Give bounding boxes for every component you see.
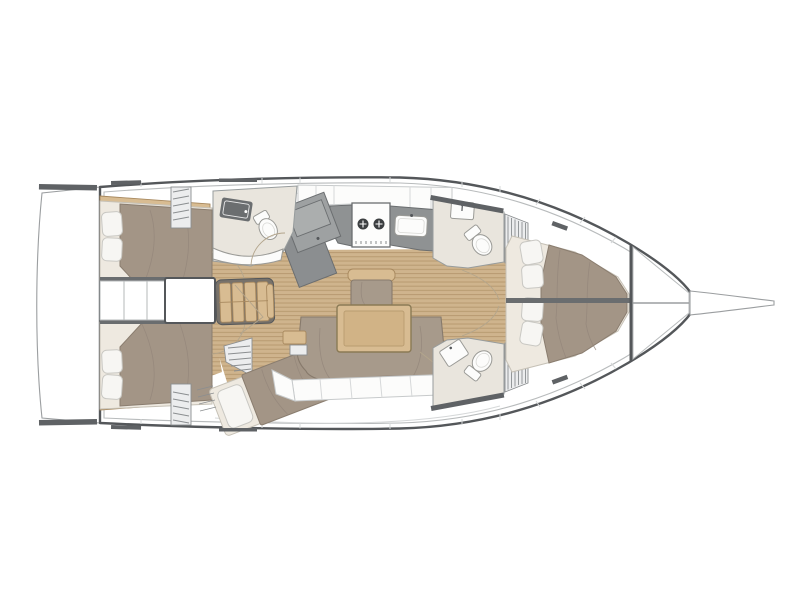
floor-plan-canvas: [0, 0, 800, 600]
salon-table: [337, 305, 411, 352]
cabin-divider-wall: [506, 298, 632, 303]
pillow: [521, 264, 544, 288]
companionway-area: [100, 277, 215, 324]
berth-duvet: [120, 322, 212, 406]
companionway-steps: [165, 278, 215, 323]
stove: [352, 203, 390, 247]
settee-bench: [215, 278, 275, 325]
bowsprit: [690, 291, 774, 315]
pillow: [519, 320, 544, 346]
chair-cushion: [351, 280, 392, 307]
galley-sink: [394, 213, 427, 237]
salon-chair: [348, 269, 395, 307]
pillow: [101, 374, 123, 399]
hanging-locker: [171, 187, 191, 228]
pillow: [519, 239, 544, 265]
stern-hatch-top: [39, 184, 97, 191]
pillow: [101, 237, 122, 261]
hanging-locker: [171, 384, 191, 425]
side-step: [290, 345, 307, 355]
side-shelf: [283, 331, 306, 344]
washbasin: [220, 198, 253, 221]
yacht-floor-plan: [0, 0, 800, 600]
pillow: [101, 211, 123, 236]
pillow: [101, 349, 122, 373]
swim-platform: [37, 184, 100, 425]
stern-hatch-bottom: [39, 419, 97, 426]
